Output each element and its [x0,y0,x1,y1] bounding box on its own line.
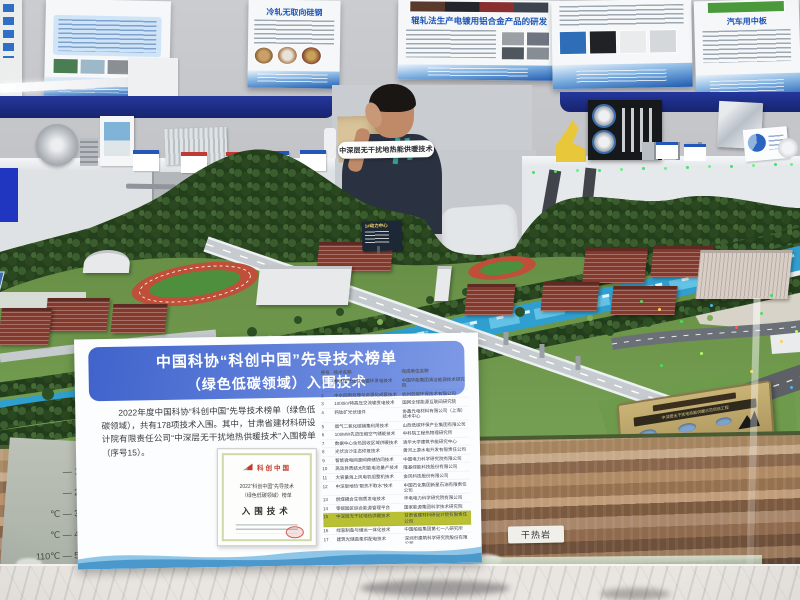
led-lights [640,300,643,303]
plaque-button [716,416,732,427]
building-red [582,248,648,283]
certificate: 科创中国 2022“科创中国”先导技术 （绿色低碳领域）榜单 入围技术 [217,448,317,546]
building-red [464,284,515,315]
rock-label-text: 干热岩 [521,528,551,542]
table-header-cell: 序号 [321,370,332,376]
billboard-pole [377,246,380,254]
billboard-title: 1#动力中心 [365,222,399,229]
building-white-complex [256,266,352,305]
shadow-blob [600,588,670,600]
model-nameplate-text: 中深层无干扰地热能供暖技术 [339,144,433,156]
billboard-power-center: 1#动力中心 [361,220,402,251]
certificate-award: 入围技术 [218,505,316,517]
certificate-line2: （绿色低碳领域）榜单 [218,492,316,499]
rock-label: 干热岩 [508,526,564,544]
building-pale-cluster [695,250,792,299]
shadow-blob [360,580,510,596]
photo-exhibition-booth: 冷轧无取向硅钢 辊轧法生产电镀用铝合金产品的研发 汽车用中板 [0,0,800,600]
certificate-seal [286,526,304,538]
placard-table-body: 1整体煤气化联合循环发电技术中国华能集团清洁能源技术研究院2中水回用处理与资源化… [321,376,472,546]
certificate-line1: 2022“科创中国”先导技术 [218,483,316,490]
building-gym-arch [83,250,131,273]
billboard-lines [365,231,389,244]
building-red [0,308,52,345]
info-placard: 中国科协“科创中国”先导技术榜单 （绿色低碳领域）入围技术 2022年度中国科协… [74,332,482,569]
certificate-brand: 科创中国 [257,465,291,472]
model-nameplate: 中深层无干扰地热能供暖技术 [338,140,434,159]
building-red [610,286,677,315]
table-header-cell: 完成单位名称 [402,368,469,375]
certificate-swoosh-logo [243,463,253,470]
placard-table: 序号 技术名称 完成单位名称 1整体煤气化联合循环发电技术中国华能集团清洁能源技… [321,367,472,546]
building-red [110,304,167,333]
table-header-cell: 技术名称 [334,369,400,376]
building-red [44,298,109,331]
building-red [540,282,599,311]
